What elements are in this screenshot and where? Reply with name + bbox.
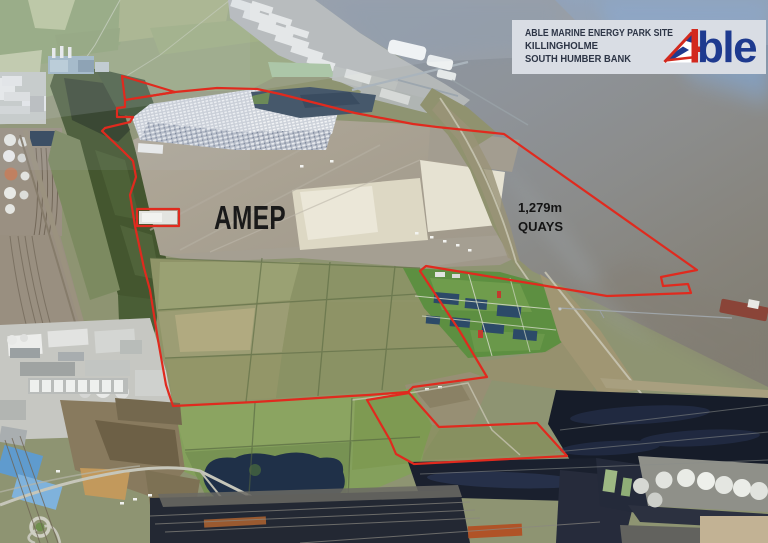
svg-text:1,279m: 1,279m — [518, 200, 562, 215]
svg-text:KILLINGHOLME: KILLINGHOLME — [525, 40, 598, 52]
svg-text:ABLE MARINE ENERGY PARK SITE: ABLE MARINE ENERGY PARK SITE — [525, 27, 673, 39]
svg-text:AMEP: AMEP — [214, 201, 286, 237]
svg-text:QUAYS: QUAYS — [518, 219, 563, 234]
svg-text:SOUTH HUMBER BANK: SOUTH HUMBER BANK — [525, 53, 631, 65]
svg-text:ble: ble — [697, 23, 756, 72]
